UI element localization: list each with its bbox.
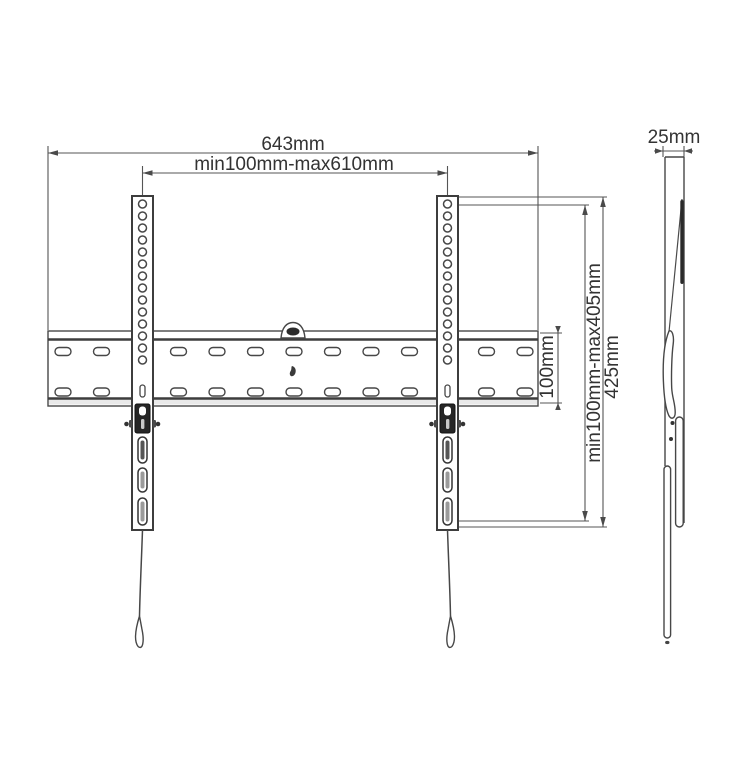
arrowhead-bottom xyxy=(582,511,588,521)
vesa-hole xyxy=(444,320,452,328)
adjust-slot-inner xyxy=(446,502,450,522)
plate-slot xyxy=(325,348,341,356)
front-view xyxy=(48,196,538,647)
vesa-hole xyxy=(444,212,452,220)
wall-plate xyxy=(48,323,538,407)
vesa-hole xyxy=(444,356,452,364)
lock-latch-highlight xyxy=(139,407,146,416)
arrowhead-right xyxy=(528,150,538,156)
side-tab xyxy=(153,420,156,428)
screw-dot xyxy=(429,422,434,427)
vesa-hole xyxy=(139,332,147,340)
vesa-hole xyxy=(444,308,452,316)
plate-slot xyxy=(94,348,110,356)
plate-slot xyxy=(517,348,533,356)
tv-mount-dimension-drawing: 643mm min100mm-max610mm 100mm xyxy=(0,0,746,769)
cord-profile-tip xyxy=(665,641,669,644)
pull-cord-loop xyxy=(136,616,144,647)
small-slot xyxy=(140,385,145,397)
plate-slot xyxy=(171,348,187,356)
arm-profile-lower xyxy=(676,417,684,527)
arrowhead-top xyxy=(582,205,588,215)
arrowhead-left xyxy=(48,150,58,156)
plate-slot xyxy=(402,388,418,396)
vesa-hole xyxy=(139,212,147,220)
plate-slot xyxy=(517,388,533,396)
pull-cord xyxy=(140,530,143,616)
arrowhead-left xyxy=(143,170,153,176)
vesa-hole xyxy=(139,260,147,268)
plate-slot xyxy=(402,348,418,356)
screw-dot xyxy=(124,422,129,427)
plate-slot xyxy=(286,388,302,396)
adjust-slot-inner xyxy=(141,472,145,489)
adjust-slot-inner xyxy=(446,472,450,489)
latch-slot xyxy=(287,328,300,336)
side-tab xyxy=(458,420,461,428)
side-tab xyxy=(129,420,132,428)
vesa-hole xyxy=(139,296,147,304)
lock-latch-inner xyxy=(141,419,144,429)
vesa-hole xyxy=(139,308,147,316)
hook-profile-dark xyxy=(680,200,683,284)
screw-dot xyxy=(669,437,673,441)
vesa-hole xyxy=(444,200,452,208)
arrowhead-bottom xyxy=(600,517,606,527)
lock-latch-highlight xyxy=(444,407,451,416)
adjust-slot-inner xyxy=(141,441,145,460)
arrowhead-left xyxy=(655,148,663,154)
vesa-hole xyxy=(444,344,452,352)
depth-label: 25mm xyxy=(648,127,701,148)
screw-dot xyxy=(671,421,675,425)
cord-profile xyxy=(664,466,671,638)
vesa-hole xyxy=(139,272,147,280)
vesa-hole xyxy=(139,248,147,256)
dim-depth: 25mm xyxy=(648,127,701,157)
plate-slot xyxy=(209,388,225,396)
vesa-hole xyxy=(139,236,147,244)
plate-slot xyxy=(55,388,71,396)
dim-mount-width-range: min100mm-max610mm xyxy=(143,154,448,195)
arrowhead-top xyxy=(555,326,561,333)
vesa-hole xyxy=(444,260,452,268)
adjust-slot-inner xyxy=(446,441,450,460)
vesa-hole xyxy=(139,320,147,328)
arrowhead-bottom xyxy=(555,403,561,410)
vesa-hole xyxy=(444,284,452,292)
plate-slot xyxy=(171,388,187,396)
plate-height-label: 100mm xyxy=(537,335,558,398)
vesa-hole xyxy=(139,356,147,364)
bracket-height-label: 425mm xyxy=(602,335,623,398)
vesa-hole xyxy=(139,284,147,292)
dim-plate-height: 100mm xyxy=(537,326,562,410)
vesa-hole xyxy=(444,224,452,232)
pull-cord-loop xyxy=(447,616,455,647)
plate-slot xyxy=(479,388,495,396)
vesa-hole xyxy=(444,248,452,256)
lock-latch-inner xyxy=(446,419,449,429)
plate-slot xyxy=(363,388,379,396)
vesa-hole xyxy=(139,200,147,208)
adjust-slot-inner xyxy=(141,502,145,522)
side-tab xyxy=(434,420,437,428)
mount-width-range-label: min100mm-max610mm xyxy=(194,154,394,175)
plate-slot xyxy=(325,388,341,396)
total-width-label: 643mm xyxy=(261,134,324,155)
plate-slot xyxy=(55,348,71,356)
small-slot xyxy=(445,385,450,397)
arrowhead-top xyxy=(600,197,606,207)
pull-cord xyxy=(448,530,451,616)
bracket-arm-right xyxy=(429,196,465,647)
wall-plate-lower-band xyxy=(49,400,537,405)
side-view xyxy=(663,157,684,644)
arrowhead-right xyxy=(684,148,692,154)
vesa-hole xyxy=(444,236,452,244)
vesa-hole xyxy=(139,344,147,352)
screw-dot xyxy=(461,422,466,427)
vesa-hole xyxy=(444,332,452,340)
plate-slot xyxy=(94,388,110,396)
plate-slot xyxy=(248,388,264,396)
vesa-hole xyxy=(444,296,452,304)
drawing-canvas: 643mm min100mm-max610mm 100mm xyxy=(0,0,746,769)
arrowhead-right xyxy=(438,170,448,176)
screw-dot xyxy=(156,422,161,427)
arm-profile-diagonal xyxy=(669,199,682,332)
vesa-hole xyxy=(139,224,147,232)
plate-slot xyxy=(209,348,225,356)
plate-slot xyxy=(286,348,302,356)
plate-slot xyxy=(479,348,495,356)
plate-slot xyxy=(248,348,264,356)
bracket-arm-left xyxy=(124,196,160,647)
vesa-hole xyxy=(444,272,452,280)
plate-slot xyxy=(363,348,379,356)
